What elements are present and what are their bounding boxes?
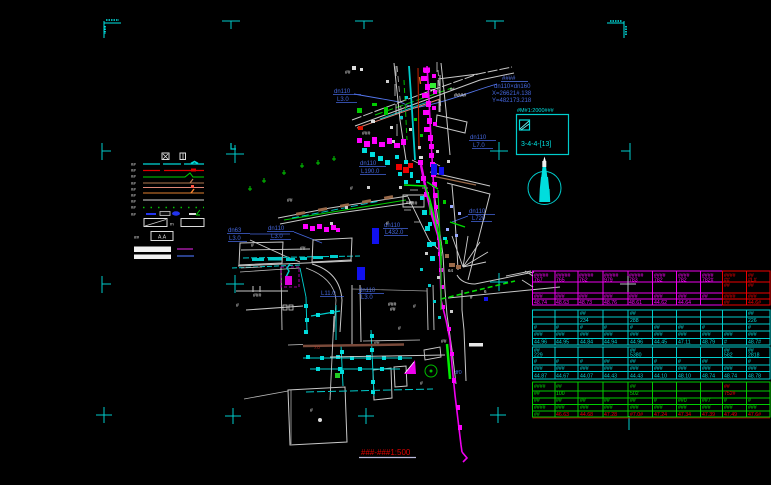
svg-text:L3.0: L3.0 — [361, 295, 373, 301]
svg-text:##: ## — [450, 86, 455, 91]
svg-text:#: # — [556, 359, 559, 365]
svg-text:###: ### — [630, 332, 639, 338]
svg-text:##: ## — [678, 325, 684, 331]
svg-text:#: # — [386, 221, 389, 227]
svg-text:#7: #7 — [430, 88, 436, 93]
svg-text:44.07: 44.07 — [580, 374, 593, 380]
svg-text:47.11: 47.11 — [678, 340, 691, 346]
svg-text:#: # — [724, 340, 727, 346]
svg-text:##: ## — [724, 283, 730, 289]
svg-text:#: # — [604, 325, 607, 331]
svg-text:782: 782 — [654, 278, 663, 284]
svg-text:752#: 752# — [724, 391, 736, 397]
svg-text:##: ## — [345, 70, 351, 76]
svg-text:48.78: 48.78 — [748, 374, 761, 380]
svg-text:#: # — [534, 359, 537, 365]
svg-text:###: ### — [604, 405, 613, 411]
svg-text:###: ### — [362, 131, 371, 137]
svg-text:44.95: 44.95 — [556, 340, 569, 346]
svg-text:##7: ##7 — [702, 398, 711, 404]
svg-text:#: # — [748, 359, 751, 365]
svg-text:48.79: 48.79 — [702, 340, 715, 346]
svg-text:762: 762 — [579, 278, 588, 284]
svg-text:###: ### — [604, 332, 613, 338]
svg-text:Y=482173.218: Y=482173.218 — [492, 98, 532, 104]
svg-text:X=26621#.138: X=26621#.138 — [492, 91, 532, 97]
svg-text:###: ### — [253, 293, 262, 299]
svg-text:##: ## — [556, 384, 562, 390]
svg-text:###: ### — [702, 405, 711, 411]
svg-text:###: ### — [748, 332, 757, 338]
svg-text:###: ### — [630, 405, 639, 411]
svg-text:##: ## — [131, 205, 136, 210]
svg-text:###: ### — [534, 332, 543, 338]
svg-text:#: # — [556, 325, 559, 331]
svg-text:##: ## — [287, 198, 293, 204]
svg-text:#: # — [654, 359, 657, 365]
svg-text:48.73: 48.73 — [579, 300, 592, 306]
svg-text:#: # — [534, 325, 537, 331]
svg-text:47.6#: 47.6# — [748, 412, 761, 418]
svg-text:###: ### — [678, 405, 687, 411]
svg-text:###: ### — [748, 405, 757, 411]
svg-text:44.45: 44.45 — [654, 340, 667, 346]
svg-text:288: 288 — [630, 318, 639, 324]
svg-text:###: ### — [678, 366, 687, 372]
svg-text:#: # — [580, 359, 583, 365]
svg-text:#: # — [350, 186, 353, 192]
svg-text:###-###1:500: ###-###1:500 — [361, 448, 411, 457]
svg-text:44.62: 44.62 — [654, 300, 667, 306]
svg-text:48.76: 48.76 — [604, 300, 617, 306]
svg-text:##: ## — [131, 199, 136, 204]
svg-text:###: ### — [534, 366, 543, 372]
svg-text:44.43: 44.43 — [604, 374, 617, 380]
svg-text:44.43: 44.43 — [630, 374, 643, 380]
svg-text:##: ## — [702, 359, 708, 365]
svg-text:##: ## — [556, 398, 562, 404]
svg-text:44.6#: 44.6# — [748, 300, 761, 306]
svg-text:###: ### — [724, 366, 733, 372]
svg-text:48.63: 48.63 — [556, 300, 569, 306]
svg-text:##: ## — [131, 193, 136, 198]
svg-text:##: ## — [630, 398, 636, 404]
svg-text:#: # — [236, 303, 239, 309]
svg-text:44.67: 44.67 — [556, 374, 569, 380]
svg-text:44.96: 44.96 — [630, 340, 643, 346]
svg-text:#: # — [748, 325, 751, 331]
svg-text:48.10: 48.10 — [678, 374, 691, 380]
svg-text:64: 64 — [448, 268, 454, 273]
svg-text:#: # — [702, 325, 705, 331]
svg-text:502: 502 — [630, 391, 639, 397]
svg-text:####: #### — [534, 384, 546, 390]
svg-text:###: ### — [678, 332, 687, 338]
svg-text:47.34: 47.34 — [678, 412, 691, 418]
svg-text:m: m — [170, 222, 174, 227]
svg-text:44.10: 44.10 — [654, 374, 667, 380]
svg-text:##: ## — [724, 384, 730, 390]
svg-text:47.49: 47.49 — [724, 412, 737, 418]
svg-text:#: # — [678, 359, 681, 365]
svg-text:##: ## — [131, 168, 136, 173]
svg-text:48.61: 48.61 — [629, 300, 642, 306]
svg-text:##: ## — [131, 212, 136, 217]
svg-text:#: # — [654, 398, 657, 404]
svg-text:##: ## — [630, 384, 636, 390]
svg-text:##: ## — [300, 246, 306, 252]
svg-text:###: ### — [556, 405, 565, 411]
svg-text:979: 979 — [604, 278, 613, 284]
svg-text:##: ## — [580, 311, 586, 317]
svg-text:##: ## — [131, 187, 136, 192]
svg-text:5380: 5380 — [630, 353, 642, 359]
svg-text:#: # — [580, 325, 583, 331]
svg-text:582: 582 — [724, 353, 733, 359]
svg-text:###: ### — [556, 366, 565, 372]
svg-text:782: 782 — [678, 278, 687, 284]
svg-text:####: #### — [454, 93, 467, 99]
svg-text:###: ### — [724, 332, 733, 338]
svg-text:44.94: 44.94 — [604, 340, 617, 346]
svg-text:3-4-4-[13]: 3-4-4-[13] — [521, 141, 551, 148]
svg-text:A.A: A.A — [158, 235, 167, 241]
svg-text:783: 783 — [629, 278, 638, 284]
svg-text:##: ## — [748, 311, 754, 317]
svg-text:##: ## — [131, 181, 136, 186]
svg-text:#: # — [251, 243, 254, 249]
svg-text:44.68: 44.68 — [580, 412, 593, 418]
svg-text:###: ### — [630, 366, 639, 372]
svg-text:765: 765 — [556, 278, 565, 284]
svg-text:47.39: 47.39 — [702, 412, 715, 418]
svg-text:##: ## — [604, 359, 610, 365]
svg-text:###: ### — [654, 405, 663, 411]
svg-text:##: ## — [390, 307, 396, 313]
svg-text:#: # — [630, 325, 633, 331]
svg-text:#: # — [748, 398, 751, 404]
svg-text:47.24: 47.24 — [654, 412, 667, 418]
svg-text:####: #### — [534, 405, 546, 411]
svg-text:48.74: 48.74 — [724, 374, 737, 380]
svg-text:226: 226 — [748, 318, 757, 324]
svg-text:229: 229 — [534, 353, 543, 359]
svg-text:##: ## — [580, 398, 586, 404]
svg-text:###: ### — [580, 366, 589, 372]
svg-text:###: ### — [748, 366, 757, 372]
svg-text:###: ### — [604, 366, 613, 372]
svg-text:##0: ##0 — [678, 398, 687, 404]
svg-text:###: ### — [580, 332, 589, 338]
svg-text:47.28: 47.28 — [604, 412, 617, 418]
svg-text:###: ### — [702, 366, 711, 372]
svg-text:#M#1:2000###: #M#1:2000### — [517, 108, 555, 114]
svg-text:##: ## — [702, 294, 708, 300]
svg-text:782#: 782# — [702, 278, 714, 284]
svg-text:46.63: 46.63 — [556, 412, 569, 418]
svg-text:44.84: 44.84 — [580, 340, 593, 346]
svg-text:##: ## — [654, 325, 660, 331]
svg-text:48.7#: 48.7# — [748, 340, 761, 346]
svg-text:44.87: 44.87 — [534, 374, 547, 380]
svg-text:##: ## — [534, 412, 540, 418]
svg-text:#: # — [420, 381, 423, 387]
svg-text:##: ## — [534, 391, 540, 397]
svg-text:48.74: 48.74 — [534, 300, 547, 306]
svg-text:###: ### — [702, 332, 711, 338]
svg-text:###: ### — [654, 332, 663, 338]
svg-text:#7.0#: #7.0# — [630, 412, 643, 418]
svg-text:##: ## — [441, 339, 447, 345]
svg-text:###: ### — [654, 366, 663, 372]
svg-text:48.74: 48.74 — [702, 374, 715, 380]
svg-text:###: ### — [580, 405, 589, 411]
svg-text:7.0: 7.0 — [314, 345, 320, 350]
svg-text:#: # — [413, 304, 416, 310]
svg-text:##: ## — [131, 162, 136, 167]
svg-text:100: 100 — [556, 391, 565, 397]
svg-text:44.96: 44.96 — [534, 340, 547, 346]
svg-text:767: 767 — [534, 278, 543, 284]
svg-text:#: # — [398, 326, 401, 332]
svg-text:###: ### — [556, 332, 565, 338]
svg-text:dn110×dn160: dn110×dn160 — [494, 84, 531, 90]
svg-text:#: # — [310, 408, 313, 414]
svg-text:##: ## — [724, 300, 730, 306]
svg-text:##: ## — [134, 235, 140, 240]
svg-text:###: ### — [724, 405, 733, 411]
svg-text:##: ## — [630, 311, 636, 317]
svg-text:2818: 2818 — [748, 353, 760, 359]
svg-text:##: ## — [131, 174, 136, 179]
svg-text:##: ## — [748, 283, 754, 289]
svg-text:#: # — [724, 398, 727, 404]
svg-text:##: ## — [604, 398, 610, 404]
svg-text:234: 234 — [580, 318, 589, 324]
svg-text:##: ## — [630, 359, 636, 365]
svg-text:44.64: 44.64 — [678, 300, 691, 306]
svg-text:###: ### — [409, 201, 418, 207]
svg-text:##: ## — [534, 398, 540, 404]
